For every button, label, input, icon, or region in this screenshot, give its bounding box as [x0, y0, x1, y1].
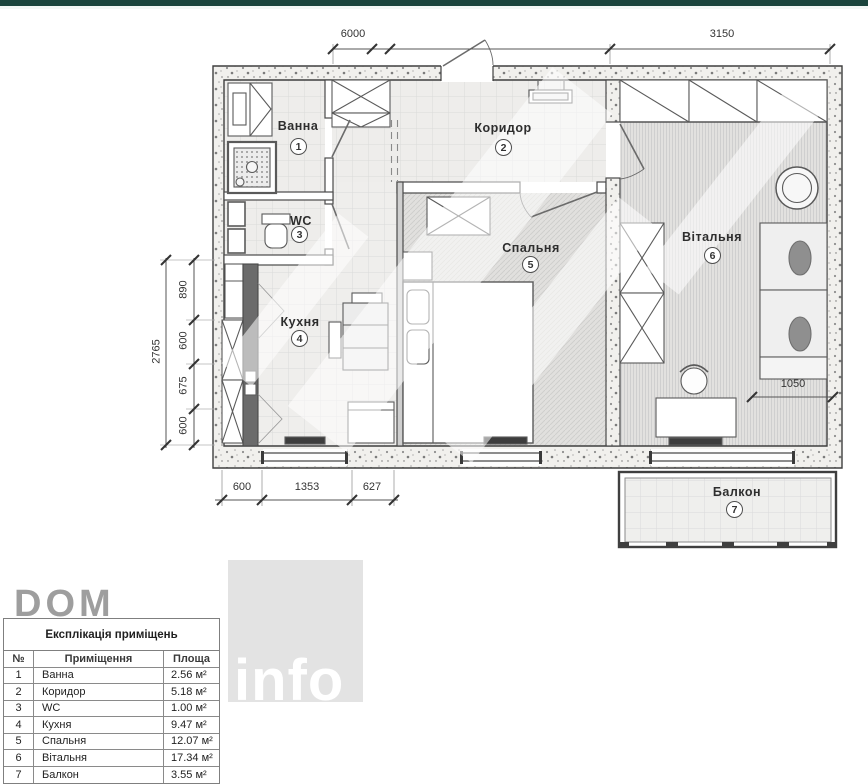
table-header-row: № Приміщення Площа — [4, 651, 219, 668]
cell-num: 2 — [4, 684, 34, 700]
col-header-room: Приміщення — [34, 651, 164, 667]
living-radiator — [669, 438, 722, 445]
room-label-living: Вітальня — [662, 230, 762, 244]
kitchen-cabinets — [222, 320, 243, 443]
fridge — [225, 264, 243, 318]
col-header-area: Площа — [164, 651, 219, 667]
room-number-living: 6 — [704, 247, 721, 264]
cell-num: 4 — [4, 717, 34, 733]
cell-num: 5 — [4, 734, 34, 750]
cell-room: Кухня — [34, 717, 164, 733]
cell-area: 12.07 м² — [164, 734, 219, 750]
dim-bottom-600: 600 — [212, 481, 272, 494]
cell-area: 17.34 м² — [164, 750, 219, 766]
dim-left-600a: 600 — [178, 321, 191, 361]
room-label-kitchen: Кухня — [260, 315, 340, 329]
table-row: 2 Коридор 5.18 м² — [4, 684, 219, 701]
dim-bottom-627: 627 — [342, 481, 402, 494]
info-watermark-text: info — [234, 647, 344, 702]
table-row: 4 Кухня 9.47 м² — [4, 717, 219, 734]
dim-left-890: 890 — [178, 270, 191, 310]
room-number-bedroom: 5 — [522, 256, 539, 273]
room-label-corridor: Коридор — [453, 121, 553, 135]
corridor-wardrobe — [332, 80, 390, 127]
table-title: Експлікація приміщень — [4, 619, 219, 651]
room-number-kitchen: 4 — [291, 330, 308, 347]
cell-area: 1.00 м² — [164, 701, 219, 717]
table-row-partial: 7 Балкон 3.55 м² — [4, 767, 219, 784]
table-row: 3 WC 1.00 м² — [4, 701, 219, 718]
entrance-opening — [441, 64, 493, 82]
dim-living-1050: 1050 — [763, 378, 823, 391]
dim-left-675: 675 — [178, 366, 191, 406]
cell-num: 7 — [4, 767, 34, 784]
explication-table: Експлікація приміщень № Приміщення Площа… — [3, 618, 220, 784]
cell-room: Балкон — [34, 767, 164, 784]
cell-room: Ванна — [34, 668, 164, 684]
entrance-door-leaf — [443, 40, 485, 66]
table-row: 5 Спальня 12.07 м² — [4, 734, 219, 751]
info-watermark-block: info — [228, 560, 363, 702]
dim-left-600b: 600 — [178, 406, 191, 446]
dim-bottom-1353: 1353 — [277, 481, 337, 494]
floor-plan-page: { "watermarks": { "dom": "DOM", "info": … — [0, 0, 868, 768]
cell-area: 5.18 м² — [164, 684, 219, 700]
dim-top-3150: 3150 — [692, 28, 752, 41]
cell-room: Вітальня — [34, 750, 164, 766]
cell-room: WC — [34, 701, 164, 717]
table-row: 1 Ванна 2.56 м² — [4, 668, 219, 685]
cell-room: Коридор — [34, 684, 164, 700]
sofa-cushion — [789, 317, 811, 351]
cell-room: Спальня — [34, 734, 164, 750]
table-row: 6 Вітальня 17.34 м² — [4, 750, 219, 767]
room-label-balcony: Балкон — [687, 485, 787, 499]
room-number-balcony: 7 — [726, 501, 743, 518]
cell-num: 1 — [4, 668, 34, 684]
round-table — [776, 167, 818, 209]
sofa — [760, 223, 827, 379]
room-number-corridor: 2 — [495, 139, 512, 156]
dim-left-2765: 2765 — [151, 332, 164, 372]
living-room-window — [649, 449, 795, 466]
sofa-cushion — [789, 241, 811, 275]
kitchen-window — [261, 449, 348, 466]
wall-corridor-bedroom-stub — [597, 182, 606, 193]
kitchen-radiator — [285, 437, 325, 444]
col-header-number: № — [4, 651, 34, 667]
windows — [261, 449, 795, 466]
cell-num: 3 — [4, 701, 34, 717]
room-label-bedroom: Спальня — [481, 241, 581, 255]
shower-cabin — [228, 142, 276, 193]
room-number-wc: 3 — [291, 226, 308, 243]
cell-area: 9.47 м² — [164, 717, 219, 733]
cell-num: 6 — [4, 750, 34, 766]
cell-area: 2.56 м² — [164, 668, 219, 684]
room-number-bathroom: 1 — [290, 138, 307, 155]
room-label-bathroom: Ванна — [258, 119, 338, 133]
dim-top-6000: 6000 — [323, 28, 383, 41]
cell-area: 3.55 м² — [164, 767, 219, 784]
